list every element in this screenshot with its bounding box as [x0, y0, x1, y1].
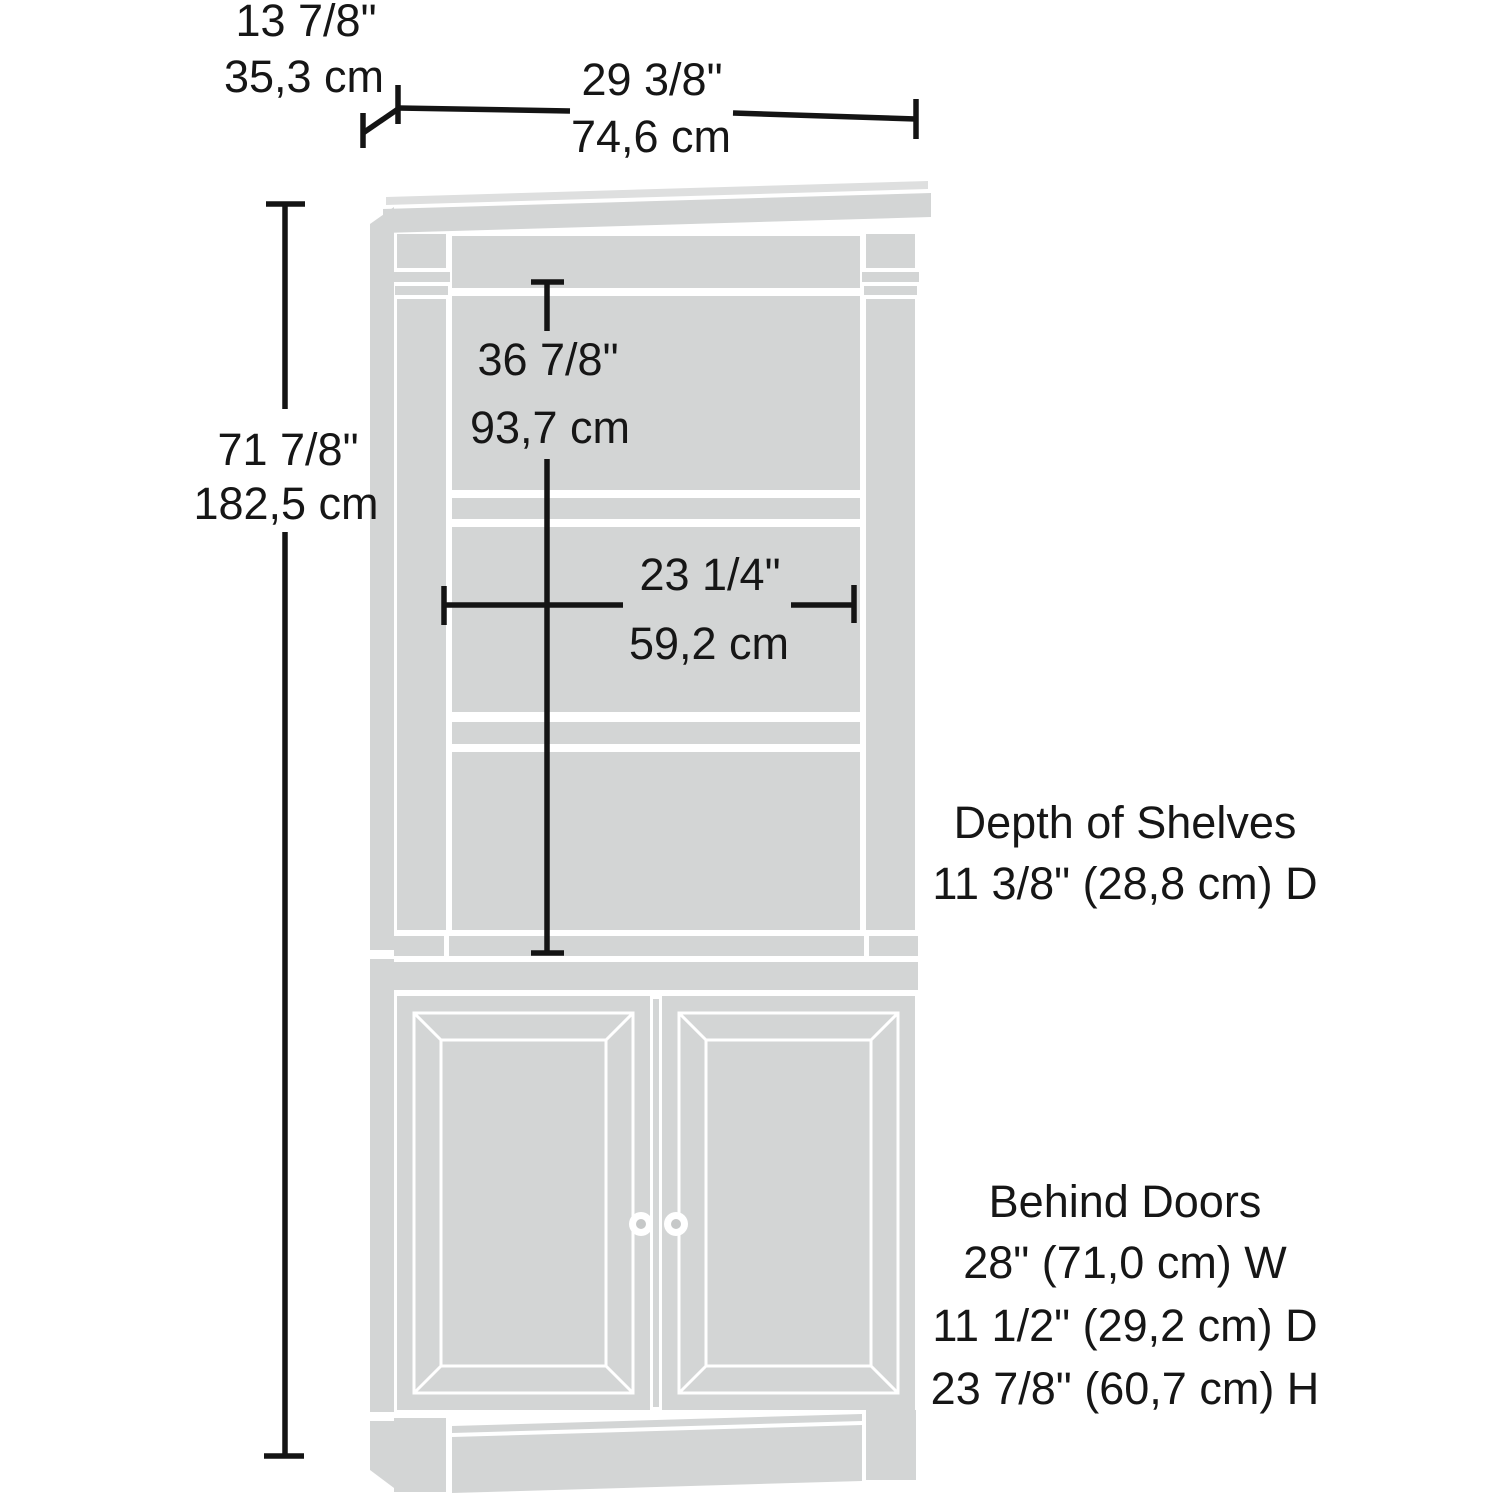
pilaster-right-capital-upper	[862, 272, 919, 282]
door-gap-strip	[653, 999, 659, 1407]
shelf-opening-1	[452, 296, 860, 490]
shelf-opening-3	[452, 752, 860, 930]
cabinet-door-right	[662, 996, 915, 1410]
shelf-front-edge-2	[452, 722, 860, 744]
side-face-gap-waist	[369, 950, 395, 959]
width-dimension-line-right	[733, 113, 916, 119]
height-label-cm: 182,5 cm	[193, 478, 378, 529]
base-block-left	[394, 1418, 446, 1492]
waist-molding-lower	[394, 962, 918, 990]
waist-notch-right	[864, 936, 869, 956]
width-label-inches: 29 3/8"	[581, 54, 722, 105]
interior-width-label-cm: 59,2 cm	[629, 618, 789, 669]
door-knob-right-dot	[671, 1219, 681, 1229]
width-label-cm: 74,6 cm	[571, 111, 731, 162]
base-block-right	[866, 1410, 916, 1480]
cabinet-side-face	[370, 207, 394, 1488]
behind-doors-note-line2: 28" (71,0 cm) W	[963, 1237, 1287, 1288]
pilaster-right-block	[866, 234, 915, 268]
depth-label-cm: 35,3 cm	[224, 51, 384, 102]
cabinet-door-left	[397, 996, 650, 1410]
shelf-depth-note-line2: 11 3/8" (28,8 cm) D	[932, 858, 1317, 909]
shelf-depth-note-line1: Depth of Shelves	[954, 797, 1297, 848]
pilaster-left-capital-upper	[393, 272, 450, 282]
behind-doors-note-line1: Behind Doors	[989, 1176, 1262, 1227]
door-knob-left-dot	[636, 1219, 646, 1229]
side-face-gap-base	[369, 1412, 395, 1421]
top-frieze-panel	[452, 236, 860, 288]
interior-width-label-inches: 23 1/4"	[639, 549, 780, 600]
depth-dimension-diagonal	[363, 109, 398, 133]
pilaster-left-shaft	[397, 299, 446, 930]
interior-height-label-inches: 36 7/8"	[477, 334, 618, 385]
waist-notch-left	[444, 936, 449, 956]
pilaster-right-shaft	[866, 299, 915, 930]
height-label-inches: 71 7/8"	[217, 424, 358, 475]
pilaster-left-block	[397, 234, 446, 268]
interior-height-label-cm: 93,7 cm	[470, 402, 630, 453]
width-dimension-line-left	[398, 108, 570, 111]
pilaster-right-capital-lower	[864, 286, 917, 295]
base-plinth-middle	[452, 1425, 862, 1493]
behind-doors-note-line4: 23 7/8" (60,7 cm) H	[931, 1363, 1320, 1414]
pilaster-left-capital-lower	[395, 286, 448, 295]
bookcase-illustration	[369, 181, 931, 1493]
depth-label-inches: 13 7/8"	[235, 0, 376, 46]
behind-doors-note-line3: 11 1/2" (29,2 cm) D	[932, 1300, 1317, 1351]
waist-molding-upper	[394, 936, 918, 956]
shelf-front-edge-1	[452, 498, 860, 519]
bookcase-dimension-diagram: 13 7/8" 35,3 cm 29 3/8" 74,6 cm 71 7/8" …	[0, 0, 1500, 1500]
